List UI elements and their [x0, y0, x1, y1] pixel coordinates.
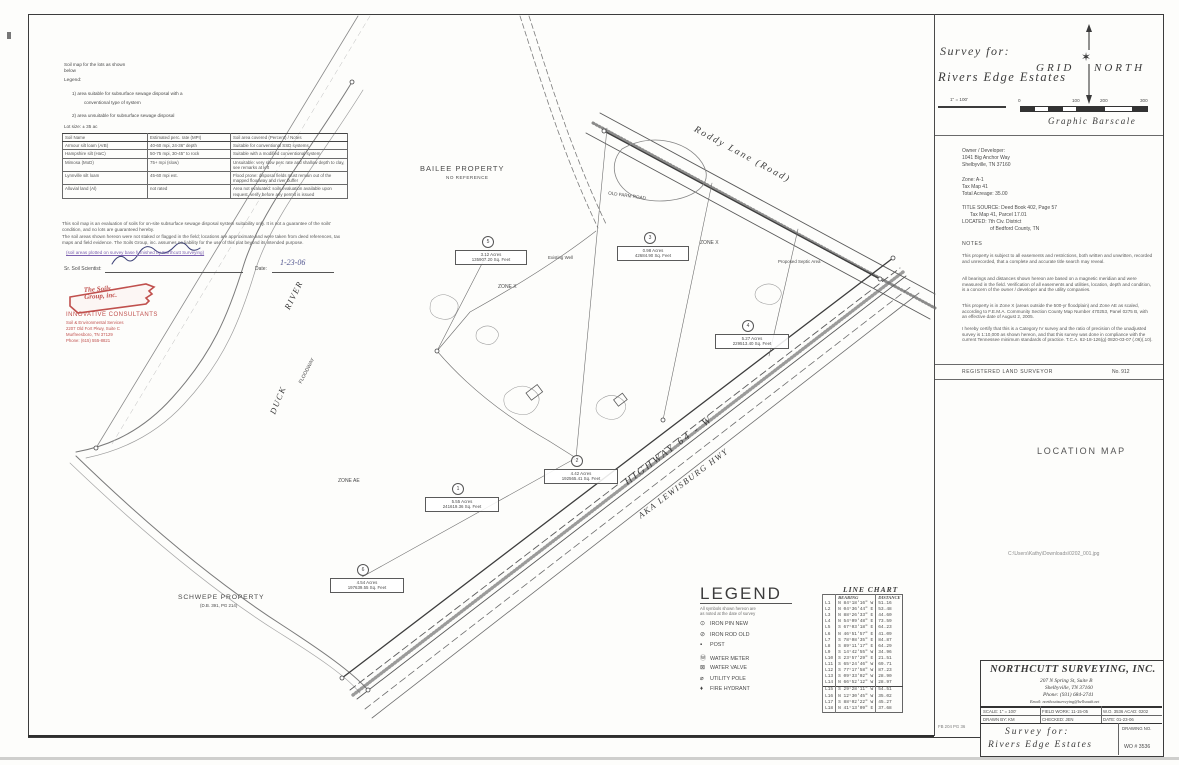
soils-cell: 45-60 mpi est. — [148, 172, 231, 185]
legend-item-label: IRON ROD OLD — [710, 632, 750, 638]
soil-scientist-label: Sr. Soil Scientist: — [64, 266, 102, 272]
scanned-survey-sheet: Soil map for the lots as shown below Leg… — [0, 0, 1179, 765]
line-chart-row: L15S 29°28'11" W54.51 — [823, 687, 903, 694]
signature-line — [105, 272, 243, 273]
north-star-icon: ✶ — [1081, 50, 1091, 64]
date-value-handwritten: 1-23-06 — [280, 258, 305, 267]
firm-address: Shelbyville, TN 37160 — [1045, 685, 1093, 691]
legend-item-label: FIRE HYDRANT — [710, 686, 750, 692]
line-chart-row: L14N 66°52'12" W28.97 — [823, 680, 903, 687]
barscale-tick: 100 — [1072, 98, 1080, 103]
soils-stamp-tagline: INNOVATIVE CONSULTANTS — [66, 312, 158, 318]
line-bearing: S 78°08'35" E — [836, 638, 876, 644]
surveyor-band-bottom — [935, 379, 1163, 380]
legend-item-label: UTILITY POLE — [710, 676, 746, 682]
line-bearing: N 12°30'45" W — [836, 694, 876, 700]
legend-note: as noted at the date of survey — [700, 611, 755, 616]
line-bearing: N 41°13'09" E — [836, 706, 876, 713]
title-source-line: Tax Map 41, Parcel 17.01 — [970, 212, 1027, 218]
line-distance: 54.51 — [876, 687, 903, 694]
drawing-no-label: DRAWING NO. — [1122, 726, 1151, 731]
soils-cell: Mimosa (MoD) — [63, 158, 148, 171]
schwepe-reference-label: (D.B. 391, PG 214) — [200, 603, 237, 608]
soils-row: Mimosa (MoD) 75+ mpi (slow) Unsuitable: … — [63, 158, 348, 171]
water-valve-icon: ⊠ — [700, 664, 710, 671]
soils-header-line: below — [64, 68, 76, 73]
lot-sqft: 42684.90 Sq. Feet — [620, 253, 686, 258]
fire-hydrant-icon: ♦ — [700, 686, 710, 692]
legend-item-label: WATER METER — [710, 656, 749, 662]
line-chart-row: L18N 41°13'09" E37.68 — [823, 706, 903, 713]
title-block-rule — [980, 723, 1162, 724]
barscale-tick: 200 — [1100, 98, 1108, 103]
soils-cell: 75+ mpi (slow) — [148, 158, 231, 171]
note-paragraph: I hereby certify that this is a Category… — [962, 326, 1154, 343]
well-label: Existing Well — [548, 255, 573, 260]
titleblock-client: Rivers Edge Estates — [988, 740, 1092, 750]
line-distance: 37.68 — [876, 706, 903, 713]
owner-line: Shelbyville, TN 37160 — [962, 162, 1011, 168]
soils-cell: 40-60 mpi, 24-36" depth — [148, 142, 231, 150]
septic-area-label: Proposed Septic Area — [778, 259, 820, 264]
legend-item-label: POST — [710, 642, 725, 648]
barscale-tick: 0 — [1018, 98, 1021, 103]
located-line: LOCATED: 7th Civ. District — [962, 219, 1021, 225]
soils-legend-item: 2) area unsuitable for subsurface sewage… — [72, 113, 174, 118]
line-bearing: N 46°51'57" E — [836, 632, 876, 638]
fieldwork-cell: FIELD WORK: 11-15-05 — [1042, 709, 1100, 714]
graphic-barscale-label: Graphic Barscale — [1048, 116, 1136, 126]
soils-stamp-company: The Soils Group, inc. — [84, 285, 118, 301]
drawing-no-divider — [1118, 723, 1119, 755]
lot-area-label: 0.98 Acres 42684.90 Sq. Feet — [617, 246, 689, 261]
title-source-line: TITLE SOURCE: Deed Book 402, Page 57 — [962, 205, 1057, 211]
mini-scale-label: 1" = 100' — [950, 97, 968, 102]
barscale-segment — [1132, 106, 1148, 112]
date-line — [272, 272, 334, 273]
tax-map-line: Tax Map 41 — [962, 184, 988, 190]
iron-rod-old-icon: ⊘ — [700, 631, 710, 638]
panel-section-divider — [935, 135, 1163, 136]
date-cell: DATE: 01-23-06 — [1103, 717, 1161, 722]
soils-paragraph: The soil areas shown hereon were not sta… — [62, 234, 344, 245]
legend-item-label: WATER VALVE — [710, 665, 747, 671]
lot-sqft: 135907.20 Sq. Feet — [458, 257, 524, 262]
soils-col-header: Estimated perc. rate (MPI) — [148, 134, 231, 142]
scale-cell: SCALE: 1" = 100' — [983, 709, 1039, 714]
located-line: of Bedford County, TN — [990, 226, 1039, 232]
lot-area-label: 3.12 Acres 135907.20 Sq. Feet — [455, 250, 527, 265]
survey-linework — [0, 0, 1179, 765]
note-paragraph: All bearings and distances shown hereon … — [962, 276, 1154, 293]
note-paragraph: This property is subject to all easement… — [962, 253, 1154, 264]
bailee-property-label: BAILEE PROPERTY — [420, 164, 504, 173]
surveyor-number: No. 912 — [1112, 369, 1130, 375]
drawing-no-value: WO # 3536 — [1124, 744, 1150, 750]
soils-paragraph: This soil map is an evaluation of soils … — [62, 221, 342, 232]
lot-sqft: 241619.36 Sq. Feet — [428, 504, 496, 509]
line-bearing: S 89°11'17" E — [836, 644, 876, 650]
legend-item: ⌀UTILITY POLE — [700, 675, 746, 682]
lot-number-marker: 5 — [482, 236, 494, 248]
legend-item: ♦FIRE HYDRANT — [700, 686, 750, 692]
surveyor-band-top — [935, 364, 1163, 365]
zone-x-label: ZONE X — [498, 284, 517, 290]
legend-item: ⊙IRON PIN NEW — [700, 620, 748, 627]
soils-cell: not rated — [148, 185, 231, 198]
registered-surveyor-label: REGISTERED LAND SURVEYOR — [962, 369, 1053, 375]
date-label: Date: — [255, 266, 267, 272]
legend-item: ⊘IRON ROD OLD — [700, 631, 750, 638]
soils-row: Alluvial land (Al) not rated Area not ev… — [63, 185, 348, 198]
line-distance: 28.97 — [876, 680, 903, 687]
soils-header-line: Soil map for the lots as shown — [64, 62, 125, 67]
legend-item: ▪POST — [700, 642, 725, 648]
soils-legend-item: conventional type of system — [84, 100, 141, 105]
line-bearing: N 66°52'12" W — [836, 680, 876, 687]
soils-col-header: Soil Name — [63, 134, 148, 142]
acreage-line: Total Acreage: 35.00 — [962, 191, 1008, 197]
title-block-col-divider — [1040, 706, 1041, 723]
workorder-cell: W.O. 3536 ACAD: 0202 — [1103, 709, 1161, 714]
firm-phone: Phone: (931) 684-2741 — [1043, 692, 1094, 698]
line-bearing: S 67°03'18" E — [836, 625, 876, 631]
firm-email: Email: northcuttsurveying@bellsouth.net — [1030, 699, 1099, 704]
soils-stamp-address: 2207 Old Fort Pkwy, Suite C — [66, 326, 120, 331]
lot-number-marker: 4 — [742, 320, 754, 332]
bottom-thick-rule — [28, 735, 934, 737]
zone-x-label: ZONE X — [700, 240, 719, 246]
legend-item: ⊠WATER VALVE — [700, 664, 747, 671]
lot-number-marker: 6 — [357, 564, 369, 576]
checked-cell: CHECKED: JEN — [1042, 717, 1100, 722]
legend-item-label: IRON PIN NEW — [710, 621, 748, 627]
water-meter-icon: Ⓦ — [700, 653, 710, 662]
barscale-tick: 300 — [1140, 98, 1148, 103]
soils-cell: Suitable with a modified conventional sy… — [231, 150, 348, 158]
soils-legend-item: 1) area suitable for subsurface sewage d… — [72, 91, 183, 96]
soils-lot-size-note: Lot size: ± 35 ac — [64, 124, 97, 129]
soils-stamp-address: Murfreesboro, TN 37129 — [66, 332, 113, 337]
soils-row: Hampshire silt (HaC) 50-75 mpi, 30-45" t… — [63, 150, 348, 158]
soils-cell: 50-75 mpi, 30-45" to rock — [148, 150, 231, 158]
lot-sqft: 192565.41 Sq. Feet — [547, 476, 615, 481]
mini-scale-line — [938, 106, 1006, 108]
lot-area-label: 5.27 Acres 229513.40 Sq. Feet — [715, 334, 789, 349]
margin-note: FB 204 PG 36 — [938, 724, 965, 729]
iron-pin-new-icon: ⊙ — [700, 620, 710, 627]
lot-number-marker: 3 — [644, 232, 656, 244]
soils-legend-heading: Legend: — [64, 78, 81, 83]
lot-number-marker: 1 — [452, 483, 464, 495]
soils-col-header: Soil area covered (Percent) / Notes — [231, 134, 348, 142]
title-block-col-divider — [1101, 706, 1102, 723]
soils-table: Soil Name Estimated perc. rate (MPI) Soi… — [62, 133, 348, 199]
line-chart-table: BEARINGDISTANCE L1N 84°18'16" W51.16 L2N… — [822, 594, 903, 713]
note-paragraph: This property is in Zone X (areas outsid… — [962, 303, 1154, 320]
line-bearing: S 29°28'11" W — [836, 687, 876, 694]
utility-pole-icon: ⌀ — [700, 675, 710, 682]
titleblock-survey-for: Survey for: — [1005, 727, 1069, 737]
line-id: L14 — [823, 680, 836, 687]
soils-cell: Flood prone: disposal fields must remain… — [231, 172, 348, 185]
title-block-rule — [980, 715, 1162, 716]
notes-heading: NOTES — [962, 241, 982, 247]
title-block-rule — [980, 706, 1162, 708]
soils-stamp-address: Phone: (615) 555-8821 — [66, 338, 110, 343]
drawnby-cell: DRAWN BY: KM — [983, 717, 1039, 722]
soils-cell: Alluvial land (Al) — [63, 185, 148, 198]
owner-line: Owner / Developer: — [962, 148, 1005, 154]
location-map-heading: LOCATION MAP — [1037, 446, 1126, 456]
legend-item: ⓌWATER METER — [700, 653, 749, 662]
soils-stamp-address: Soil & Environmental Services — [66, 320, 124, 325]
lot-area-label: 4.42 Acres 192565.41 Sq. Feet — [544, 469, 618, 484]
soils-cell: Lynnville silt loam — [63, 172, 148, 185]
owner-line: 1041 Big Anchor Way — [962, 155, 1010, 161]
lot-area-label: 5.55 Acres 241619.36 Sq. Feet — [425, 497, 499, 512]
file-path-text: C:\Users\Kathy\Downloads\0202_001.jpg — [1008, 551, 1099, 557]
lot-sqft: 229513.40 Sq. Feet — [718, 341, 786, 346]
lot-number-marker: 2 — [571, 455, 583, 467]
barscale-segment — [1076, 106, 1106, 112]
line-id: L15 — [823, 687, 836, 694]
zone-ae-label: ZONE AE — [338, 478, 360, 484]
soils-row: Lynnville silt loam 45-60 mpi est. Flood… — [63, 172, 348, 185]
post-icon: ▪ — [700, 642, 710, 648]
soils-blue-note: (soil areas plotted on survey base furni… — [66, 250, 204, 255]
line-bearing: S 88°02'22" W — [836, 700, 876, 706]
line-chart-title: LINE CHART — [843, 585, 898, 594]
legend-title: LEGEND — [700, 584, 782, 604]
barscale-segment — [1104, 106, 1134, 112]
soils-cell: Unsuitable: very slow perc rate and shal… — [231, 158, 348, 171]
lot-sqft: 197639.55 Sq. Feet — [333, 585, 401, 590]
schwepe-property-label: SCHWEPE PROPERTY — [178, 594, 264, 601]
legend-underline — [700, 603, 792, 604]
lot-area-label: 4.54 Acres 197639.55 Sq. Feet — [330, 578, 404, 593]
soils-cell: Area not evaluated: soils evaluation ava… — [231, 185, 348, 198]
firm-address: 207 N Spring St, Suite B — [1040, 678, 1092, 684]
line-id: L18 — [823, 706, 836, 713]
soils-cell: Suitable for conventional SSD systems — [231, 142, 348, 150]
firm-name: NORTHCUTT SURVEYING, INC. — [990, 664, 1156, 675]
survey-for-label: Survey for: — [940, 44, 1010, 59]
zone-line: Zone: A-1 — [962, 177, 984, 183]
soils-cell: Hampshire silt (HaC) — [63, 150, 148, 158]
soils-cell: Armour silt loam (ArB) — [63, 142, 148, 150]
bailee-reference-label: NO REFERENCE — [446, 175, 489, 180]
soils-row: Armour silt loam (ArB) 40-60 mpi, 24-36"… — [63, 142, 348, 150]
